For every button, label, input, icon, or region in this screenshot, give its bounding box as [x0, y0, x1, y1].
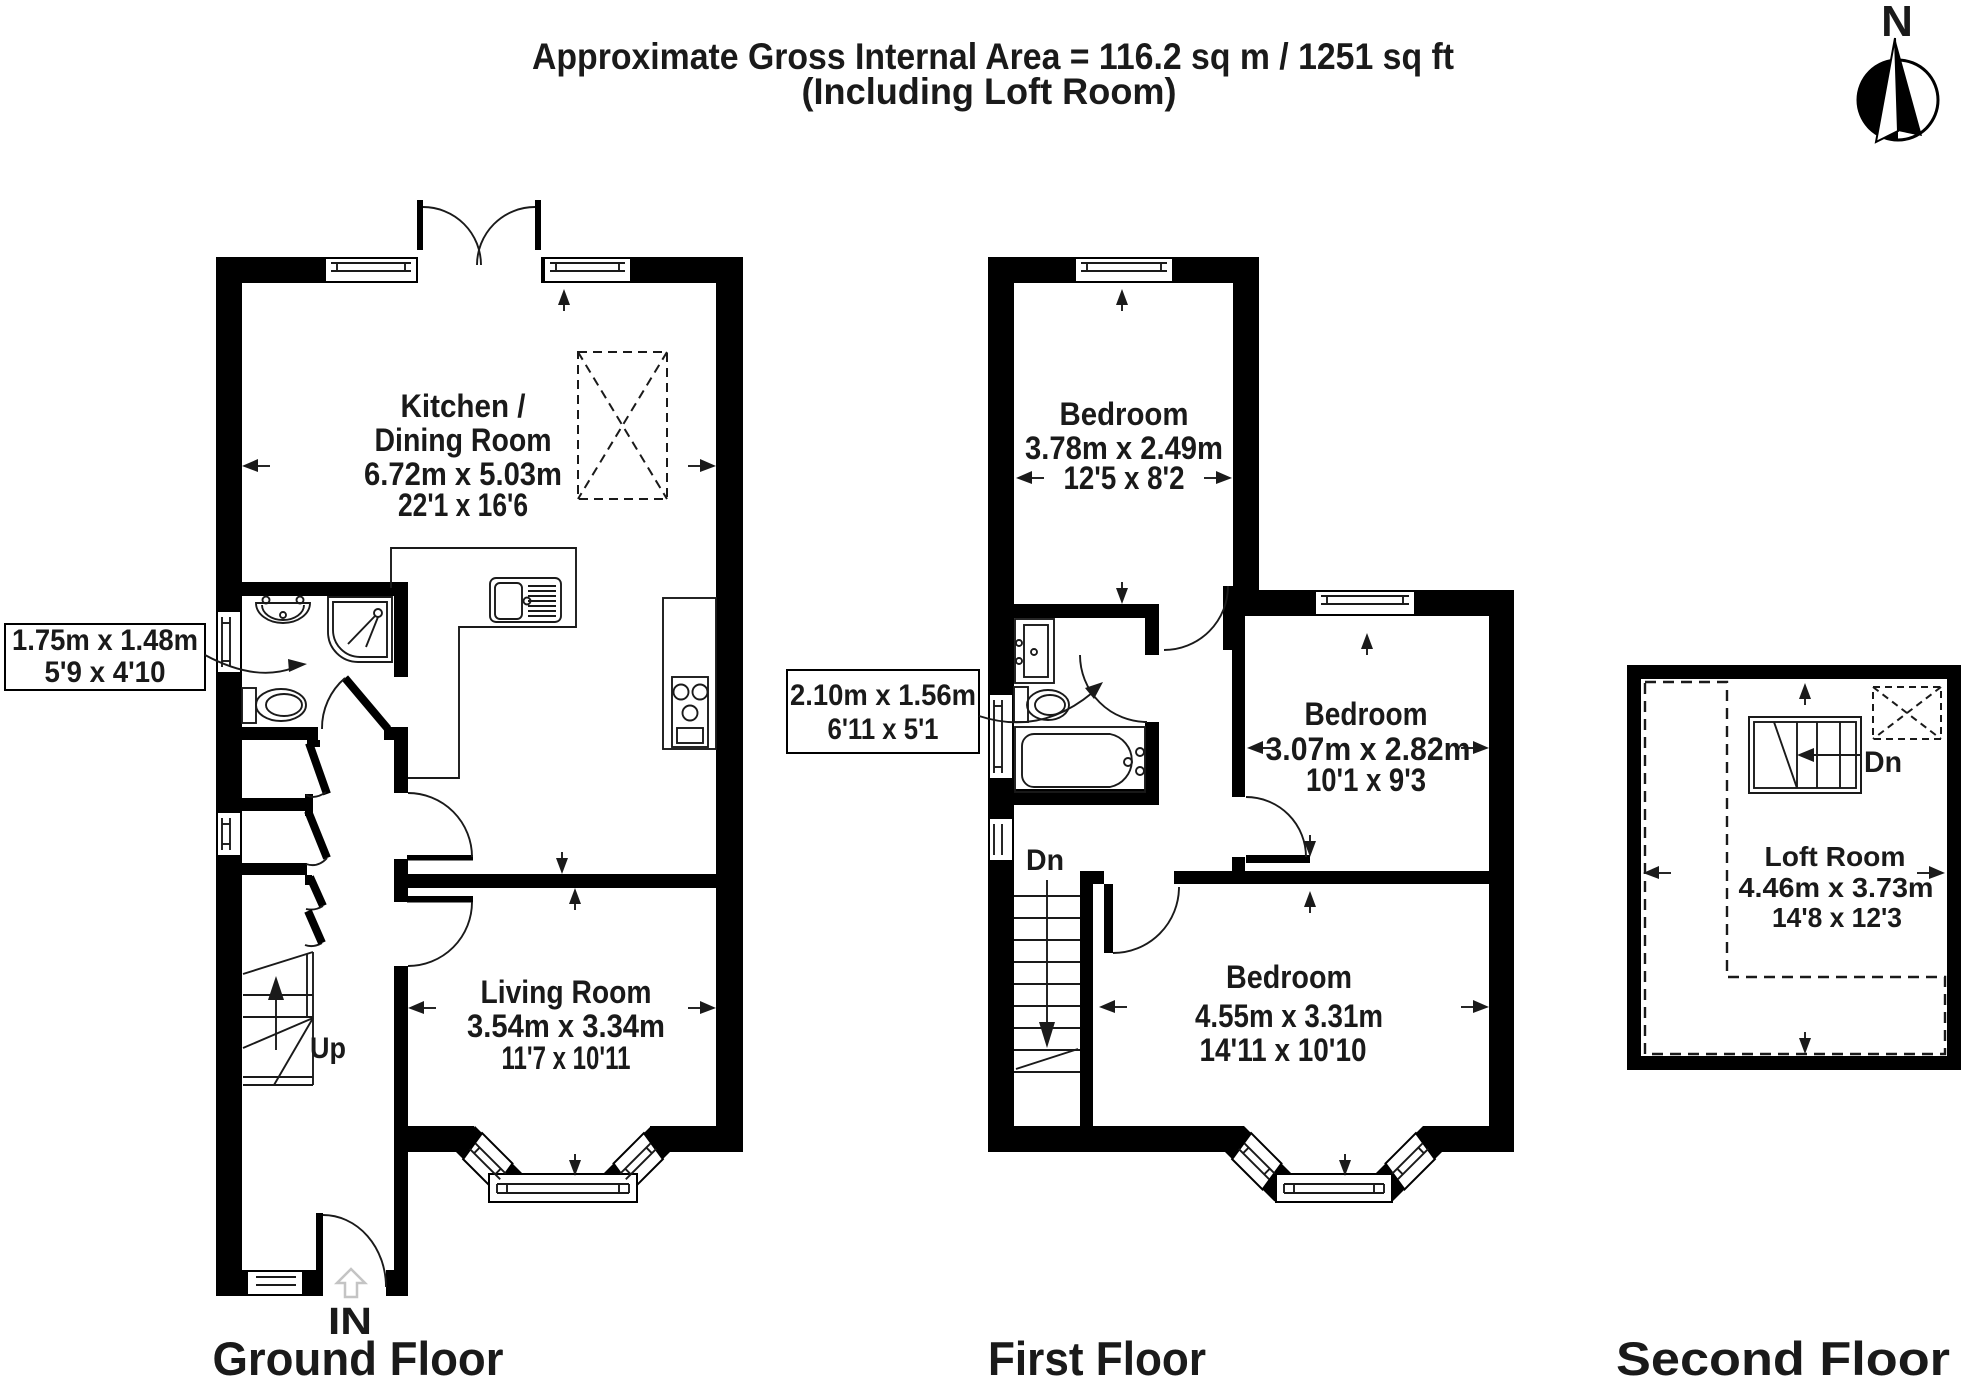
svg-text:Dining Room: Dining Room [375, 422, 552, 458]
svg-text:Ground Floor: Ground Floor [213, 1332, 504, 1384]
svg-text:1.75m x 1.48m: 1.75m x 1.48m [12, 624, 198, 657]
svg-text:First Floor: First Floor [988, 1332, 1206, 1384]
svg-text:Loft Room: Loft Room [1765, 841, 1906, 872]
svg-text:22'1 x 16'6: 22'1 x 16'6 [398, 487, 528, 523]
svg-text:2.10m x 1.56m: 2.10m x 1.56m [790, 679, 976, 712]
svg-text:Dn: Dn [1026, 844, 1064, 877]
svg-text:Bedroom: Bedroom [1060, 396, 1189, 432]
svg-text:4.46m x 3.73m: 4.46m x 3.73m [1739, 872, 1934, 903]
svg-text:11'7 x 10'11: 11'7 x 10'11 [502, 1040, 631, 1076]
svg-text:5'9 x 4'10: 5'9 x 4'10 [45, 656, 166, 689]
svg-text:3.54m x 3.34m: 3.54m x 3.34m [467, 1008, 665, 1044]
svg-text:10'1 x 9'3: 10'1 x 9'3 [1306, 762, 1426, 798]
svg-text:Kitchen /: Kitchen / [401, 388, 526, 424]
svg-text:Second Floor: Second Floor [1616, 1332, 1950, 1384]
svg-text:N: N [1881, 0, 1913, 46]
svg-text:6'11 x 5'1: 6'11 x 5'1 [828, 713, 939, 746]
svg-text:Dn: Dn [1864, 746, 1902, 779]
svg-text:12'5 x 8'2: 12'5 x 8'2 [1064, 460, 1185, 496]
svg-text:Living Room: Living Room [481, 974, 652, 1010]
svg-text:14'11 x 10'10: 14'11 x 10'10 [1200, 1032, 1367, 1068]
svg-text:4.55m x 3.31m: 4.55m x 3.31m [1195, 998, 1383, 1034]
svg-text:Up: Up [310, 1032, 346, 1065]
svg-text:Bedroom: Bedroom [1226, 959, 1352, 995]
svg-text:Bedroom: Bedroom [1305, 696, 1428, 732]
svg-text:(Including Loft Room): (Including Loft Room) [802, 71, 1177, 112]
svg-text:14'8 x 12'3: 14'8 x 12'3 [1772, 902, 1902, 933]
